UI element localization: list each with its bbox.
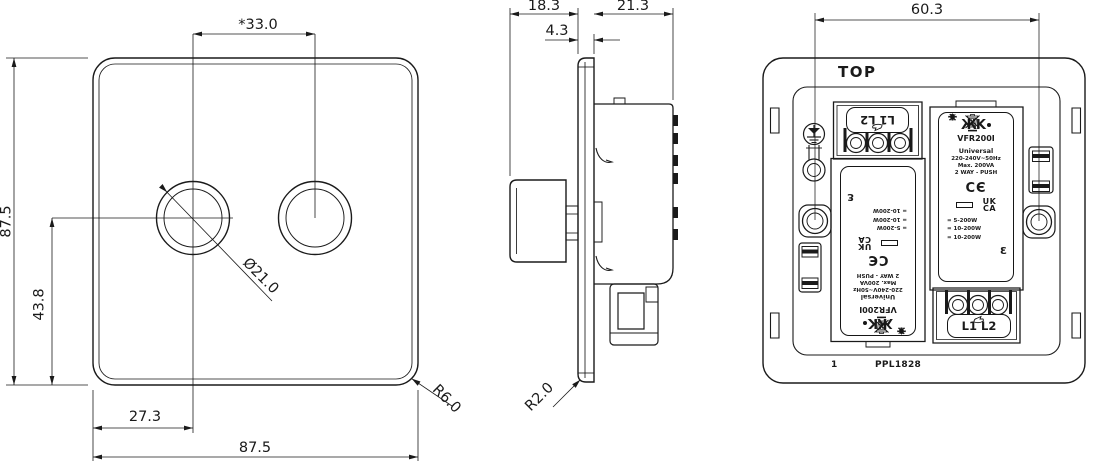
load-row-halogen: = 10-200W — [873, 208, 907, 214]
insulation-bar-icon — [956, 202, 973, 208]
load-row-led: = 5-200W — [947, 218, 981, 224]
front-dimension-lines — [6, 34, 452, 461]
front-view-drawing — [0, 0, 470, 462]
load-ratings: = 5-200W = 10-200W = 10-200W — [873, 208, 915, 231]
label-side-mark: Ɛ — [1000, 246, 1007, 257]
label-range: Universal — [861, 293, 895, 301]
load-row-led: = 5-200W — [873, 225, 907, 231]
load-text: = 5-200W — [877, 225, 907, 231]
load-ratings: = 5-200W = 10-200W = 10-200W — [939, 218, 981, 241]
dim-knob-depth: 18.3 — [509, 0, 579, 14]
right-mounting-clip — [1029, 147, 1053, 193]
label-side-mark: Ɛ — [847, 191, 854, 202]
module-rating-label-right: ЖK VFR200I Universal 220-240V~50Hz Max. … — [938, 112, 1014, 282]
dim-body-depth: 21.3 — [598, 0, 668, 14]
label-switching: 2 WAY - PUSH — [857, 272, 899, 279]
load-row-halogen: = 10-200W — [947, 235, 981, 241]
ukca-ca: CA — [983, 205, 997, 213]
dim-knob-spacing: *33.0 — [223, 18, 293, 33]
hand-icon — [872, 123, 884, 132]
side-dimension-arrows — [510, 12, 673, 388]
model-number: VFR200I — [859, 305, 897, 314]
dim-plate-height: 87.5 — [0, 187, 15, 257]
insulation-bar-icon — [881, 240, 898, 246]
ukca-mark: UK CA — [983, 198, 997, 213]
weee-icon — [874, 316, 889, 335]
load-text: = 5-200W — [947, 218, 977, 224]
ce-mark: CЄ — [965, 182, 986, 195]
footer-code: PPL1828 — [875, 360, 921, 370]
ce-mark: CЄ — [867, 254, 888, 267]
ukca-uk: UK — [858, 243, 872, 251]
label-max-load: Max. 200VA — [860, 279, 896, 286]
ukca-ca: CA — [858, 236, 872, 244]
load-row-incandescent: = 10-200W — [873, 216, 907, 222]
ukca-mark: UK CA — [858, 236, 872, 251]
dim-screw-spacing: 60.3 — [892, 3, 962, 18]
load-text: = 10-200W — [873, 208, 907, 214]
halogen-lamp-icon — [896, 327, 907, 335]
left-mounting-clip — [799, 243, 821, 292]
footer-index: 1 — [831, 360, 838, 370]
back-view-drawing — [748, 0, 1093, 462]
label-switching: 2 WAY - PUSH — [955, 170, 997, 177]
right-terminal-label: L1 L2 — [947, 314, 1011, 338]
side-module-body — [594, 98, 678, 345]
label-range: Universal — [959, 148, 993, 156]
weee-icon — [965, 113, 980, 132]
drawing-canvas: *33.0 87.5 43.8 Ø21.0 27.3 87.5 R6.0 18.… — [0, 0, 1093, 462]
side-view-drawing — [470, 0, 710, 462]
side-knob — [510, 180, 602, 262]
side-dimension-lines — [510, 8, 673, 407]
label-voltage: 220-240V~50Hz — [951, 156, 1001, 163]
earth-terminal — [803, 124, 825, 182]
load-text: = 10-200W — [947, 226, 981, 232]
load-text: = 10-200W — [947, 235, 981, 241]
front-plate — [93, 58, 418, 385]
dim-knob-center-height: 43.8 — [33, 270, 48, 340]
halogen-lamp-icon — [947, 113, 958, 121]
registered-dot — [987, 123, 991, 127]
orientation-label: TOP — [838, 63, 876, 81]
back-plate — [763, 58, 1085, 383]
side-plate — [578, 58, 594, 382]
load-text: = 10-200W — [873, 216, 907, 222]
dim-knob-offset: 27.3 — [110, 410, 180, 425]
label-max-load: Max. 200VA — [958, 163, 994, 170]
registered-dot — [863, 321, 867, 325]
left-terminal-label: L1 L2 — [846, 107, 909, 133]
dim-plate-width: 87.5 — [220, 441, 290, 456]
dim-plate-thickness: 4.3 — [522, 24, 592, 39]
model-number: VFR200I — [957, 134, 995, 143]
hand-icon — [973, 315, 985, 324]
label-voltage: 220-240V~50Hz — [853, 286, 903, 293]
module-rating-label-left: ЖK VFR200I Universal 220-240V~50Hz Max. … — [840, 166, 916, 336]
load-row-incandescent: = 10-200W — [947, 226, 981, 232]
